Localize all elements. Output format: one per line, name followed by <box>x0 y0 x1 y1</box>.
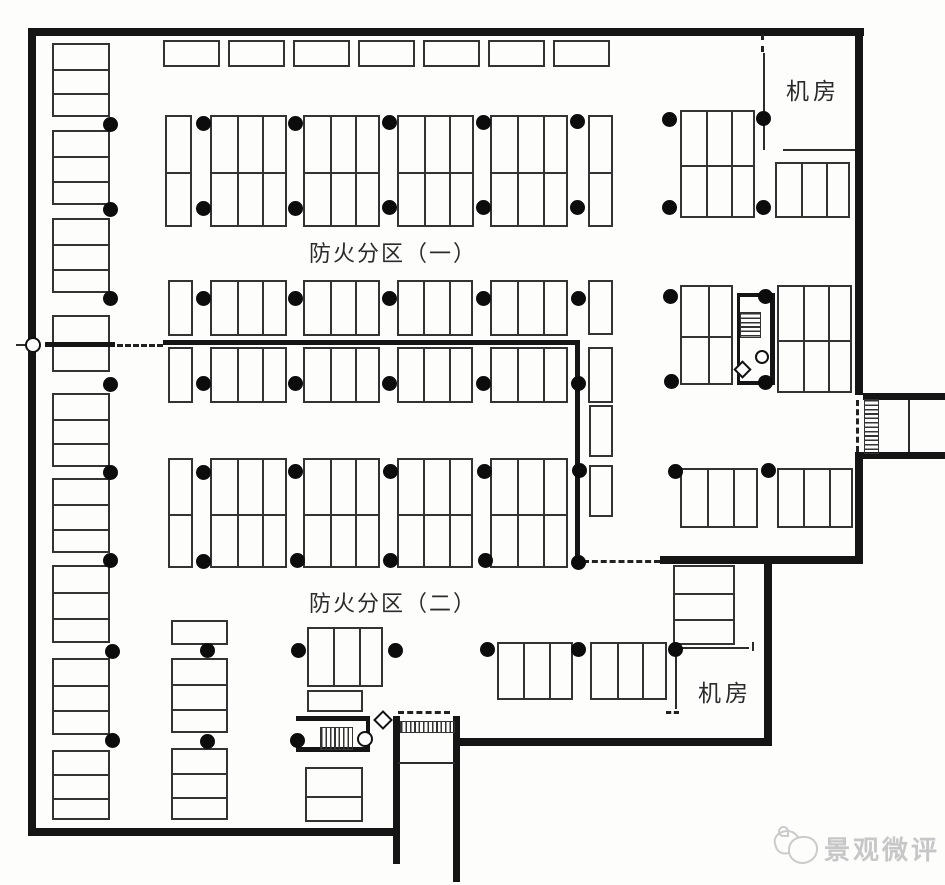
structural-column-dot <box>103 291 118 306</box>
parking-stall-group <box>680 110 755 218</box>
equipment-circle-symbol <box>755 350 769 364</box>
parking-stall-group <box>490 458 568 568</box>
parking-stall-group <box>490 347 568 403</box>
fire-zone-1-label: 防火分区（一） <box>309 236 477 268</box>
structural-column-dot <box>758 375 773 390</box>
stall-divider-line <box>449 117 451 225</box>
structural-column-dot <box>196 554 211 569</box>
stall-divider-line <box>708 287 710 383</box>
structural-column-dot <box>196 201 211 216</box>
stall-divider-line <box>449 349 451 401</box>
structural-column-dot <box>196 291 211 306</box>
parking-stall-group <box>589 405 613 457</box>
parking-stall-group <box>52 565 110 643</box>
structural-column-dot <box>570 200 585 215</box>
stall-divider-line <box>54 710 108 712</box>
fire-zone-2-label: 防火分区（二） <box>309 586 477 618</box>
stall-divider-line <box>54 269 108 271</box>
stall-divider-line <box>173 797 226 799</box>
stall-divider-line <box>424 117 426 225</box>
structural-column-dot <box>662 112 677 127</box>
stall-center-line <box>167 172 190 174</box>
stall-divider-line <box>262 117 264 225</box>
parking-stall-group <box>210 458 287 568</box>
stall-divider-line <box>803 470 805 526</box>
stall-center-line <box>212 172 285 174</box>
stair-tread-hatch <box>740 312 761 338</box>
parking-stall-group <box>52 43 110 117</box>
structural-column-dot <box>383 464 398 479</box>
structural-column-dot <box>290 553 305 568</box>
structural-column-dot <box>196 376 211 391</box>
structural-column-dot <box>663 289 678 304</box>
parking-stall-group <box>52 478 110 553</box>
stall-divider-line <box>355 282 357 334</box>
stall-divider-line <box>423 349 425 401</box>
stall-divider-line <box>237 460 239 566</box>
stall-divider-line <box>262 282 264 334</box>
stall-divider-line <box>54 592 108 594</box>
structural-column-dot <box>288 201 303 216</box>
structural-column-dot <box>196 116 211 131</box>
structural-column-dot <box>758 289 773 304</box>
fire-shutter-dashed-line <box>666 711 679 714</box>
stall-divider-line <box>54 798 108 800</box>
stall-divider-line <box>543 349 545 401</box>
stall-divider-line <box>543 117 545 225</box>
partition-wall <box>763 53 765 150</box>
stall-divider-line <box>801 164 803 216</box>
parking-stall-group <box>775 162 850 218</box>
structural-column-dot <box>664 374 679 389</box>
machine-room-bottom-label: 机房 <box>698 674 752 708</box>
structural-column-dot <box>478 553 493 568</box>
parking-stall-group <box>210 115 287 227</box>
stall-divider-line <box>707 470 709 526</box>
parking-stall-group <box>777 285 852 393</box>
parking-stall-group <box>52 218 110 293</box>
structural-column-dot <box>756 111 771 126</box>
parking-stall-group <box>52 658 110 735</box>
parking-garage-floor-plan: 防火分区（一） 防火分区（二） 机房 机房 景观微评 <box>0 0 945 885</box>
parking-stall-group <box>171 658 228 733</box>
parking-stall-group <box>680 468 758 528</box>
stall-divider-line <box>828 287 830 391</box>
stall-divider-line <box>355 460 357 566</box>
parking-stall-group <box>358 40 415 67</box>
stall-divider-line <box>517 117 519 225</box>
parking-stall-group <box>168 280 193 336</box>
stall-divider-line <box>523 644 525 698</box>
wall-segment <box>660 556 863 564</box>
structural-column-dot <box>476 200 491 215</box>
stall-center-line <box>492 172 566 174</box>
stall-divider-line <box>733 470 735 526</box>
parking-stall-group <box>397 280 473 336</box>
parking-stall-group <box>397 458 473 568</box>
stall-divider-line <box>54 69 108 71</box>
structural-column-dot <box>570 114 585 129</box>
parking-stall-group <box>210 347 287 403</box>
stall-divider-line <box>675 593 733 595</box>
structural-column-dot <box>103 202 118 217</box>
stall-divider-line <box>54 529 108 531</box>
equipment-circle-symbol <box>357 731 373 747</box>
structural-column-dot <box>668 642 683 657</box>
parking-stall-group <box>553 40 610 67</box>
structural-column-dot <box>288 291 303 306</box>
stall-divider-line <box>517 460 519 566</box>
stall-divider-line <box>237 282 239 334</box>
stair-tread-hatch <box>320 727 353 750</box>
wall-segment <box>770 293 775 385</box>
stall-divider-line <box>54 156 108 158</box>
stall-divider-line <box>423 282 425 334</box>
stall-center-line <box>779 340 850 342</box>
stall-divider-line <box>449 460 451 566</box>
stall-divider-line <box>803 287 805 391</box>
stall-divider-line <box>54 181 108 183</box>
stall-center-line <box>590 172 611 174</box>
stall-divider-line <box>54 443 108 445</box>
structural-column-dot <box>200 734 215 749</box>
structural-column-dot <box>476 115 491 130</box>
fire-shutter-dashed-line <box>856 400 859 452</box>
stall-divider-line <box>543 460 545 566</box>
wall-segment <box>28 28 36 836</box>
parking-stall-group <box>777 468 853 528</box>
structural-column-dot <box>103 465 118 480</box>
stall-divider-line <box>54 419 108 421</box>
fire-shutter-dashed-line <box>398 711 450 714</box>
stall-divider-line <box>543 282 545 334</box>
parking-stall-group <box>303 347 380 403</box>
structural-column-dot <box>382 115 397 130</box>
parking-stall-group <box>307 627 383 687</box>
cat-head-shape <box>788 836 818 864</box>
fire-shutter-dashed-line <box>117 344 163 347</box>
stall-divider-line <box>359 629 361 685</box>
structural-column-dot <box>571 642 586 657</box>
stall-center-line <box>492 514 566 516</box>
equipment-circle-symbol <box>25 337 41 353</box>
structural-column-dot <box>476 291 491 306</box>
partition-wall <box>783 149 855 151</box>
parking-stall-group <box>303 115 380 227</box>
partition-wall <box>675 649 677 709</box>
wall-segment <box>28 28 864 36</box>
stall-divider-line <box>706 112 708 216</box>
parking-stall-group <box>168 347 193 403</box>
stall-divider-line <box>355 349 357 401</box>
stall-center-line <box>305 514 378 516</box>
parking-stall-group <box>588 280 613 335</box>
parking-stall-group <box>488 40 545 67</box>
stall-divider-line <box>173 773 226 775</box>
fire-shutter-dashed-line <box>761 34 764 52</box>
stall-divider-line <box>54 774 108 776</box>
partition-wall <box>908 400 910 452</box>
parking-stall-group <box>397 115 474 227</box>
stall-divider-line <box>54 244 108 246</box>
wall-segment <box>45 342 115 347</box>
stall-divider-line <box>237 349 239 401</box>
stall-divider-line <box>54 504 108 506</box>
parking-stall-group <box>210 280 287 336</box>
wall-segment <box>296 716 370 721</box>
stall-divider-line <box>675 619 733 621</box>
structural-column-dot <box>288 116 303 131</box>
parking-stall-group <box>303 458 380 568</box>
stall-divider-line <box>517 282 519 334</box>
stair-tread-hatch <box>400 721 455 733</box>
stall-center-line <box>399 514 471 516</box>
stall-divider-line <box>330 282 332 334</box>
structural-column-dot <box>200 643 215 658</box>
parking-stall-group <box>228 40 285 67</box>
wall-segment <box>28 828 400 836</box>
stall-center-line <box>682 165 753 167</box>
structural-column-dot <box>103 553 118 568</box>
structural-column-dot <box>105 733 120 748</box>
stall-divider-line <box>330 117 332 225</box>
parking-stall-group <box>293 40 350 67</box>
stall-divider-line <box>54 618 108 620</box>
stall-divider-line <box>237 117 239 225</box>
stall-divider-line <box>330 349 332 401</box>
structural-column-dot <box>290 733 305 748</box>
machine-room-top-label: 机房 <box>786 72 840 106</box>
stall-divider-line <box>173 684 226 686</box>
wall-segment <box>453 716 460 882</box>
stall-divider-line <box>549 644 551 698</box>
parking-stall-group <box>490 115 568 227</box>
parking-stall-group <box>590 642 667 700</box>
partition-wall <box>752 642 754 651</box>
diamond-symbol <box>373 710 393 730</box>
wall-segment <box>393 716 400 864</box>
structural-column-dot <box>572 463 587 478</box>
stall-divider-line <box>423 460 425 566</box>
structural-column-dot <box>476 376 491 391</box>
stall-center-line <box>305 172 378 174</box>
parking-stall-group <box>680 285 733 385</box>
stall-divider-line <box>333 629 335 685</box>
parking-stall-group <box>397 347 473 403</box>
parking-stall-group <box>52 393 110 467</box>
parking-stall-group <box>165 115 192 227</box>
parking-stall-group <box>588 347 613 403</box>
stall-center-line <box>170 514 191 516</box>
stall-divider-line <box>731 112 733 216</box>
parking-stall-group <box>497 642 573 700</box>
wall-segment <box>855 452 863 564</box>
structural-column-dot <box>196 465 211 480</box>
parking-stall-group <box>589 465 613 517</box>
parking-stall-group <box>307 690 363 712</box>
diamond-symbol <box>733 360 751 378</box>
stall-divider-line <box>642 644 644 698</box>
wall-segment <box>764 556 772 746</box>
structural-column-dot <box>756 200 771 215</box>
stall-divider-line <box>355 117 357 225</box>
fire-shutter-dashed-line <box>583 560 660 563</box>
stall-divider-line <box>307 796 361 798</box>
parking-stall-group <box>490 280 568 336</box>
wall-segment <box>575 340 580 566</box>
parking-stall-group <box>168 458 193 568</box>
structural-column-dot <box>105 644 120 659</box>
partition-wall <box>398 762 455 764</box>
parking-stall-group <box>52 130 110 205</box>
stall-divider-line <box>54 685 108 687</box>
structural-column-dot <box>291 643 306 658</box>
structural-column-dot <box>571 291 586 306</box>
stall-divider-line <box>449 282 451 334</box>
structural-column-dot <box>103 117 118 132</box>
stall-divider-line <box>826 164 828 216</box>
watermark-cat-logo-icon <box>772 824 818 872</box>
parking-stall-group <box>52 750 110 820</box>
stall-divider-line <box>262 349 264 401</box>
stall-divider-line <box>829 470 831 526</box>
structural-column-dot <box>288 376 303 391</box>
structural-column-dot <box>383 553 398 568</box>
parking-stall-group <box>171 620 228 645</box>
structural-column-dot <box>761 463 776 478</box>
parking-stall-group <box>171 748 228 820</box>
structural-column-dot <box>662 200 677 215</box>
stair-tread-hatch <box>864 399 879 454</box>
structural-column-dot <box>388 643 403 658</box>
structural-column-dot <box>382 291 397 306</box>
stall-divider-line <box>173 709 226 711</box>
stall-center-line <box>212 514 285 516</box>
structural-column-dot <box>288 464 303 479</box>
structural-column-dot <box>382 200 397 215</box>
plan-drawing-layer <box>0 0 945 885</box>
parking-stall-group <box>423 40 480 67</box>
stall-center-line <box>399 172 472 174</box>
structural-column-dot <box>571 555 586 570</box>
parking-stall-group <box>163 40 220 67</box>
stall-center-line <box>682 336 731 338</box>
structural-column-dot <box>668 464 683 479</box>
parking-stall-group <box>673 565 735 645</box>
partition-wall <box>675 647 749 649</box>
stall-divider-line <box>617 644 619 698</box>
wall-segment <box>456 738 772 746</box>
structural-column-dot <box>571 376 586 391</box>
stall-divider-line <box>54 93 108 95</box>
stall-divider-line <box>330 460 332 566</box>
wall-segment <box>855 28 863 395</box>
structural-column-dot <box>477 464 492 479</box>
structural-column-dot <box>382 376 397 391</box>
watermark: 景观微评 <box>772 824 940 872</box>
stall-divider-line <box>262 460 264 566</box>
watermark-text: 景观微评 <box>824 830 940 867</box>
parking-stall-group <box>305 767 363 822</box>
parking-stall-group <box>588 115 613 227</box>
stall-divider-line <box>517 349 519 401</box>
structural-column-dot <box>480 642 495 657</box>
structural-column-dot <box>103 377 118 392</box>
parking-stall-group <box>303 280 380 336</box>
wall-segment <box>163 340 577 345</box>
